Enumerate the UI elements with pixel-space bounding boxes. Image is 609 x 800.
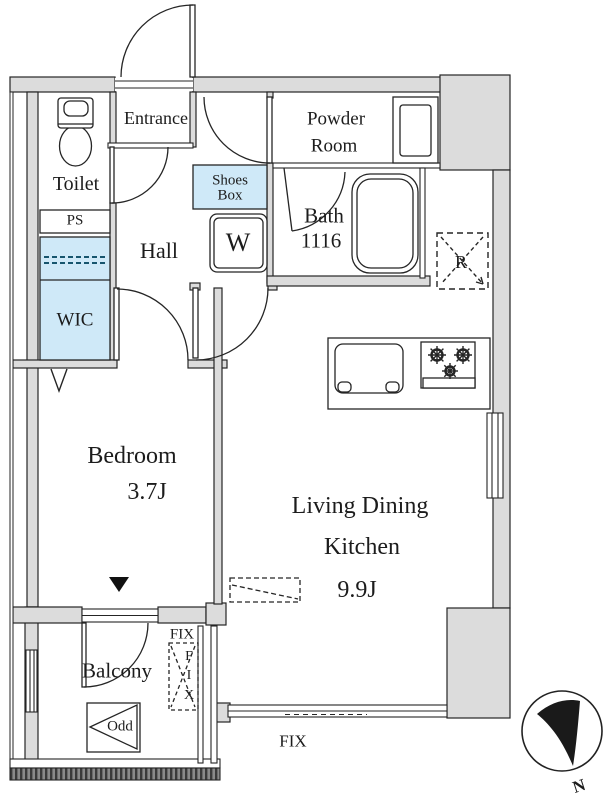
entry-direction-marker (109, 577, 129, 592)
room-label-bedroom-size: 3.7J (127, 480, 166, 504)
room-label-ldk-1: Living Dining (292, 494, 429, 518)
room-label-hall: Hall (140, 240, 178, 262)
balcony-bottom-rail (10, 759, 220, 780)
compass (522, 691, 602, 771)
powder-bath-wall (273, 163, 440, 168)
room-label-wic: WIC (57, 311, 94, 330)
room-label-shoes-box-1: Shoes (212, 174, 248, 189)
powder-room-door (204, 97, 272, 163)
room-label-washer: W (226, 230, 251, 256)
room-label-toilet: Toilet (53, 174, 99, 194)
bath-right-wall (420, 168, 425, 278)
ldk-dashed-counter (230, 578, 300, 602)
entrance-threshold (115, 78, 193, 91)
toilet-fixture (58, 98, 93, 166)
room-label-ps: PS (67, 214, 84, 229)
room-label-ldk-2: Kitchen (324, 535, 400, 559)
room-label-powder-1: Powder (307, 110, 365, 129)
stove (421, 342, 475, 388)
toilet-door (110, 147, 168, 203)
room-label-entrance: Entrance (124, 109, 188, 127)
room-label-bath: Bath (304, 206, 344, 227)
kitchen-counter (328, 338, 490, 409)
wic-closet (40, 237, 110, 360)
right-wall-window (487, 413, 503, 498)
label-fix-bottom: FIX (279, 733, 306, 750)
wic-door-mark (51, 369, 67, 391)
entrance-step (108, 143, 193, 148)
room-label-ldk-size: 9.9J (337, 578, 376, 602)
balcony-right-wall (198, 626, 217, 763)
bathtub (352, 174, 418, 273)
room-label-balcony: Balcony (82, 661, 152, 682)
entrance-door (121, 5, 195, 77)
room-label-bedroom: Bedroom (87, 444, 176, 468)
room-label-powder-2: Room (311, 137, 357, 156)
room-label-shoes-box-2: Box (217, 189, 242, 204)
bedroom-door (114, 288, 188, 360)
label-outdoor-unit: Odd (107, 720, 133, 735)
kitchen-sink (335, 344, 403, 393)
powder-sink (393, 97, 438, 163)
label-fix-balcony: FIX (170, 628, 194, 643)
label-fix-v-x: X (184, 689, 194, 703)
room-label-bath-size: 1116 (301, 231, 341, 252)
label-fix-v-f: F (185, 650, 193, 664)
balcony-left-window (26, 650, 37, 712)
floorplan: Entrance Toilet PS Hall Shoes Box W Powd… (0, 0, 609, 800)
label-fix-v-i: I (187, 669, 192, 683)
left-boundary-wall (10, 92, 13, 778)
ldk-fix-window (228, 705, 447, 717)
room-label-refrigerator: R (455, 253, 467, 271)
ldk-door (193, 288, 268, 360)
bedroom-balcony-door-sill (82, 609, 158, 622)
